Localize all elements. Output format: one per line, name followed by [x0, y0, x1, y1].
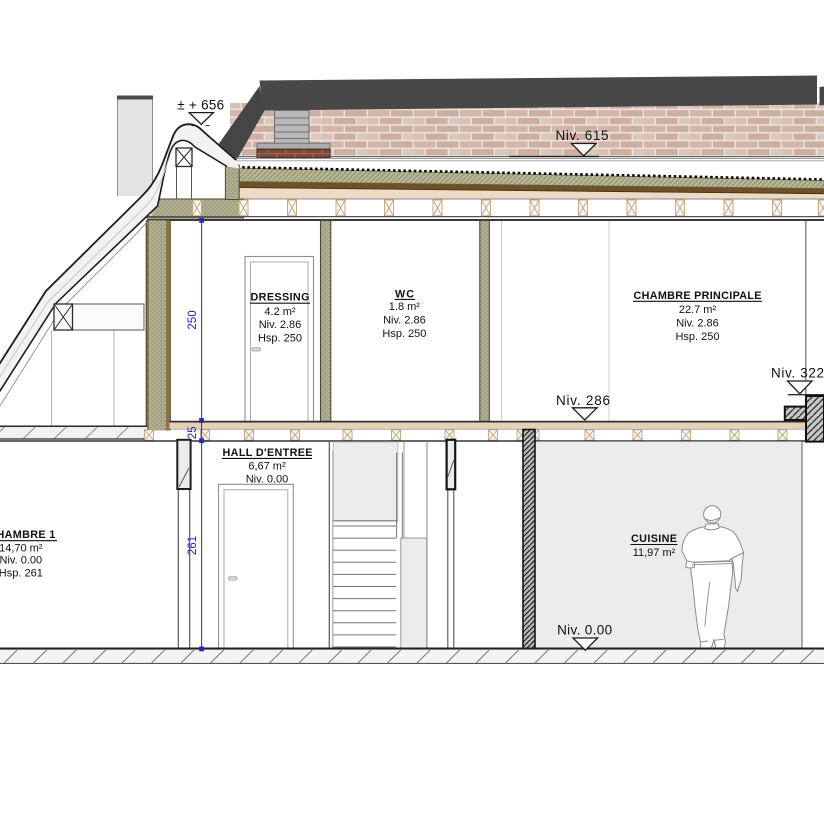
- svg-text:6,67 m²: 6,67 m²: [248, 461, 286, 473]
- svg-text:Hsp. 261: Hsp. 261: [0, 567, 43, 579]
- svg-text:250: 250: [187, 310, 199, 329]
- svg-text:Hsp. 250: Hsp. 250: [675, 331, 719, 343]
- svg-text:14,70 m²: 14,70 m²: [0, 542, 43, 554]
- svg-text:DRESSING: DRESSING: [251, 292, 310, 304]
- svg-text:25: 25: [187, 426, 199, 439]
- svg-text:Niv. 0.00: Niv. 0.00: [246, 474, 289, 486]
- svg-text:Niv. 0.00: Niv. 0.00: [557, 623, 612, 638]
- svg-text:Niv. 615: Niv. 615: [556, 128, 609, 143]
- svg-text:Niv. 286: Niv. 286: [556, 393, 610, 408]
- svg-text:Niv. 322: Niv. 322: [771, 365, 824, 380]
- svg-text:Hsp. 250: Hsp. 250: [382, 328, 426, 340]
- svg-text:± + 656: ± + 656: [177, 98, 224, 113]
- svg-text:Hsp. 250: Hsp. 250: [258, 333, 302, 345]
- svg-text:4.2 m²: 4.2 m²: [264, 306, 296, 318]
- svg-text:Niv. 2.86: Niv. 2.86: [259, 319, 302, 331]
- svg-text:Niv. 2.86: Niv. 2.86: [383, 315, 426, 327]
- svg-text:261: 261: [187, 536, 199, 555]
- svg-text:Niv. 0.00: Niv. 0.00: [0, 555, 42, 567]
- svg-text:WC: WC: [395, 288, 414, 300]
- svg-text:11,97 m²: 11,97 m²: [633, 547, 676, 559]
- svg-text:1.8 m²: 1.8 m²: [389, 301, 421, 313]
- svg-text:CHAMBRE PRINCIPALE: CHAMBRE PRINCIPALE: [634, 290, 762, 302]
- svg-text:Niv. 2.86: Niv. 2.86: [676, 317, 719, 329]
- svg-text:CUISINE: CUISINE: [631, 533, 677, 545]
- svg-text:HALL D'ENTREE: HALL D'ENTREE: [223, 447, 313, 459]
- svg-text:CHAMBRE 1: CHAMBRE 1: [0, 529, 55, 541]
- svg-text:22.7 m²: 22.7 m²: [679, 304, 717, 316]
